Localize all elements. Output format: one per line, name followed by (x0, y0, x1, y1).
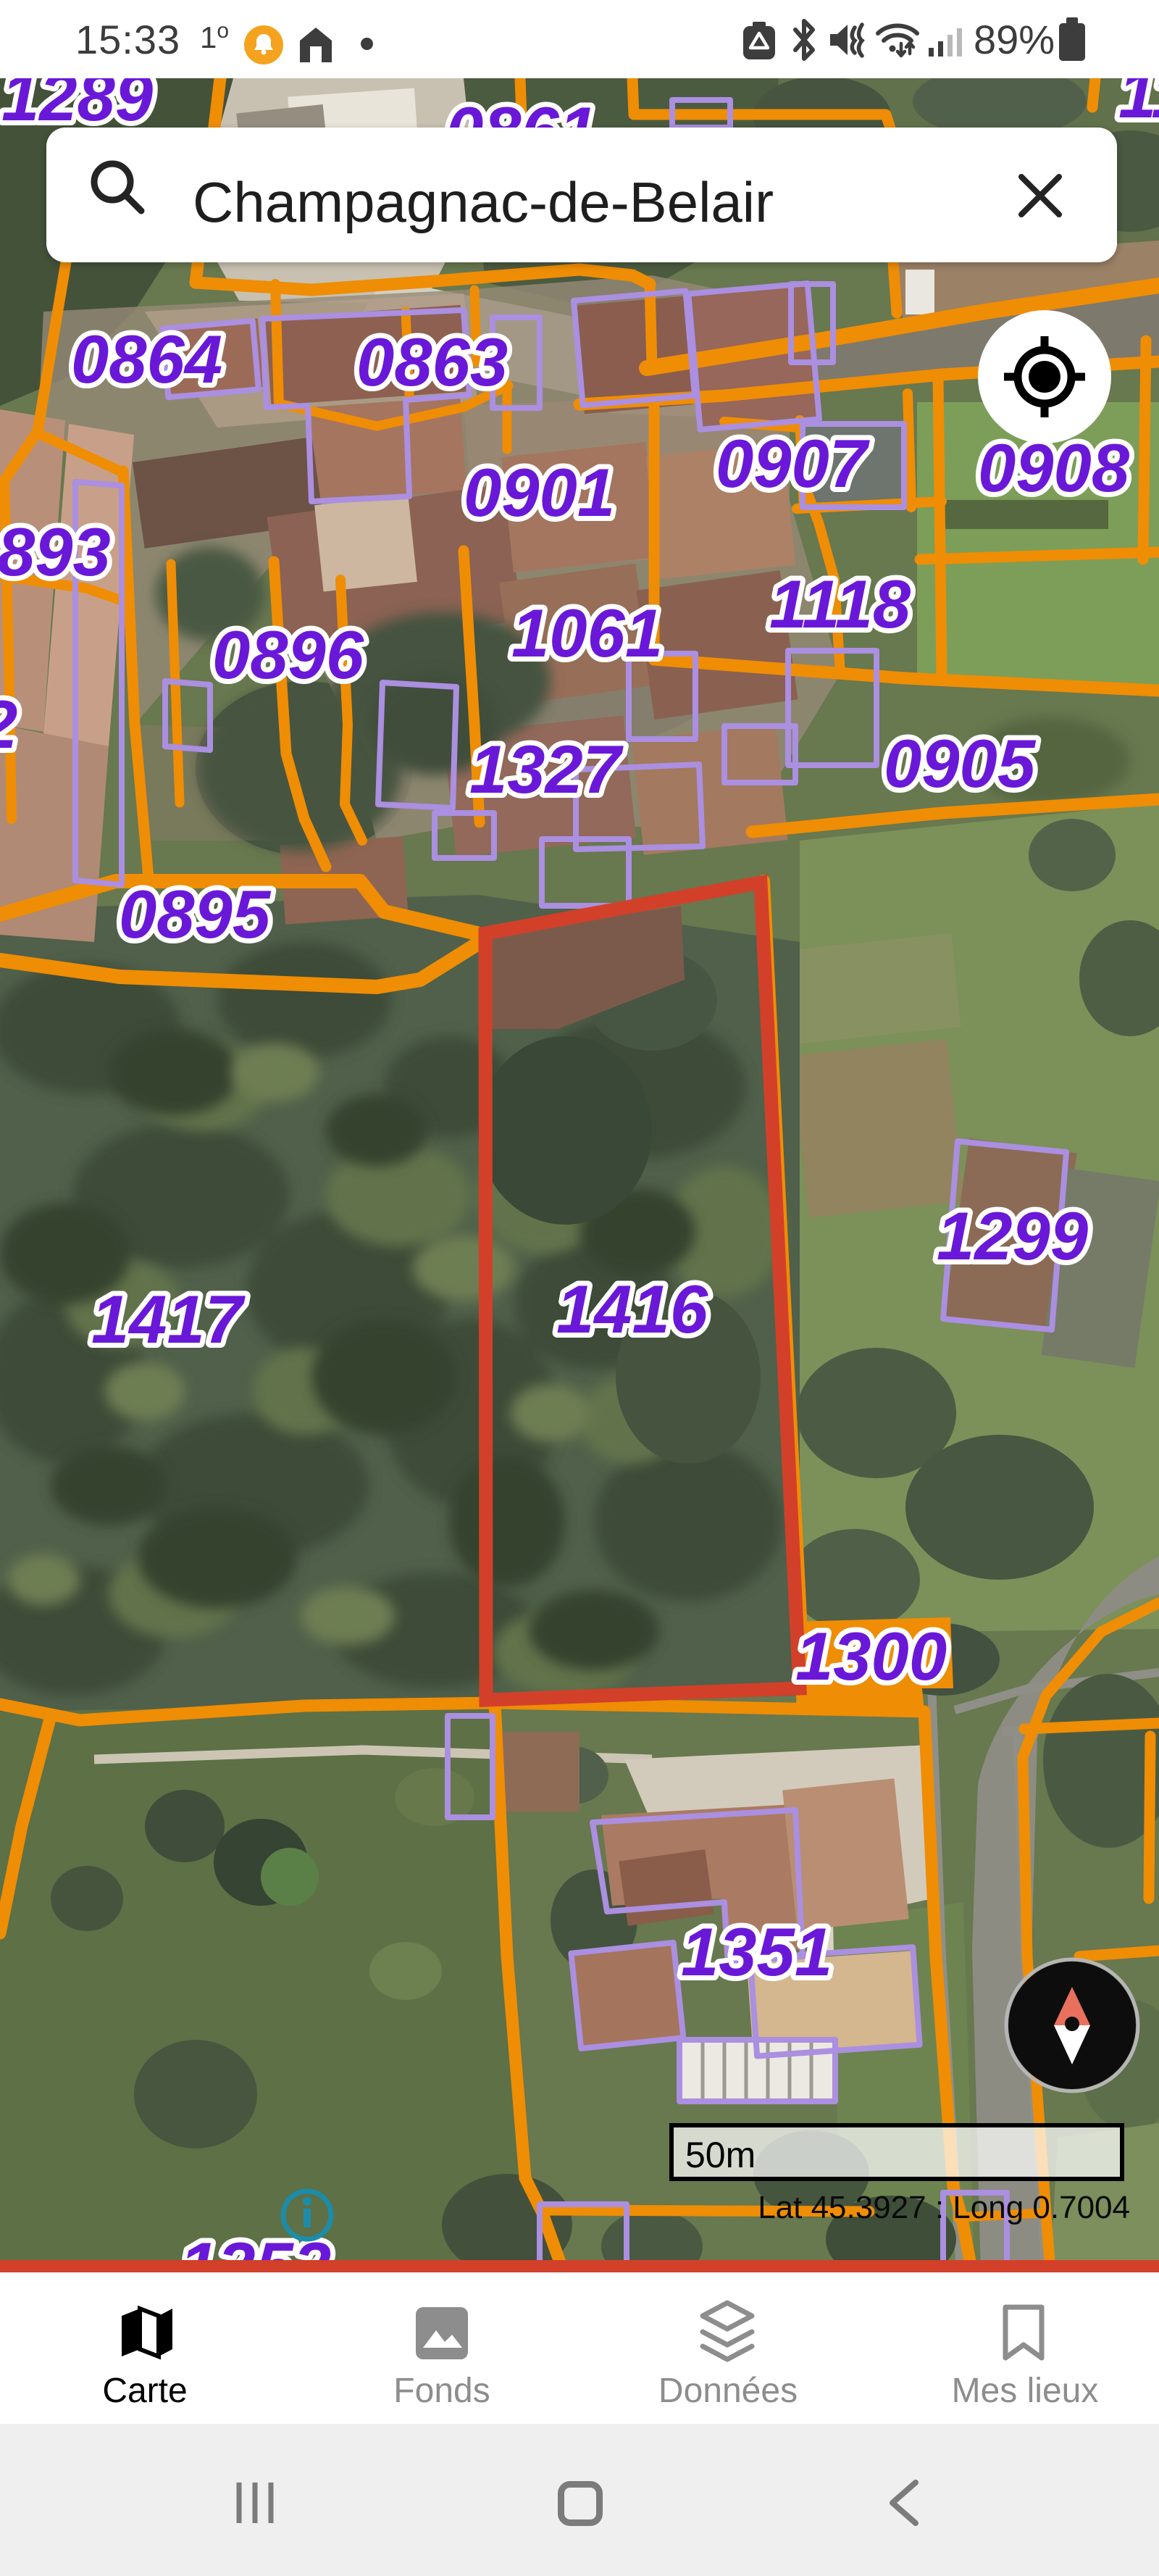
svg-text:1327: 1327 (469, 731, 624, 807)
svg-text:1351: 1351 (681, 1914, 832, 1990)
svg-text:893: 893 (0, 514, 111, 590)
svg-text:1300: 1300 (795, 1618, 947, 1694)
svg-text:0896: 0896 (212, 617, 364, 693)
svg-text:0863: 0863 (356, 324, 508, 400)
svg-text:1417: 1417 (91, 1281, 246, 1357)
svg-text:1416: 1416 (556, 1271, 708, 1347)
svg-text:0901: 0901 (464, 454, 615, 530)
svg-text:0907: 0907 (716, 425, 870, 501)
svg-text:11: 11 (1118, 78, 1159, 132)
svg-text:0905: 0905 (884, 725, 1037, 801)
svg-text:1118: 1118 (769, 566, 911, 642)
svg-text:1299: 1299 (937, 1198, 1088, 1274)
svg-text:2: 2 (0, 686, 17, 762)
svg-text:0895: 0895 (119, 876, 272, 952)
svg-text:1061: 1061 (511, 595, 663, 671)
svg-text:0864: 0864 (71, 321, 222, 397)
svg-text:1289: 1289 (1, 78, 153, 135)
